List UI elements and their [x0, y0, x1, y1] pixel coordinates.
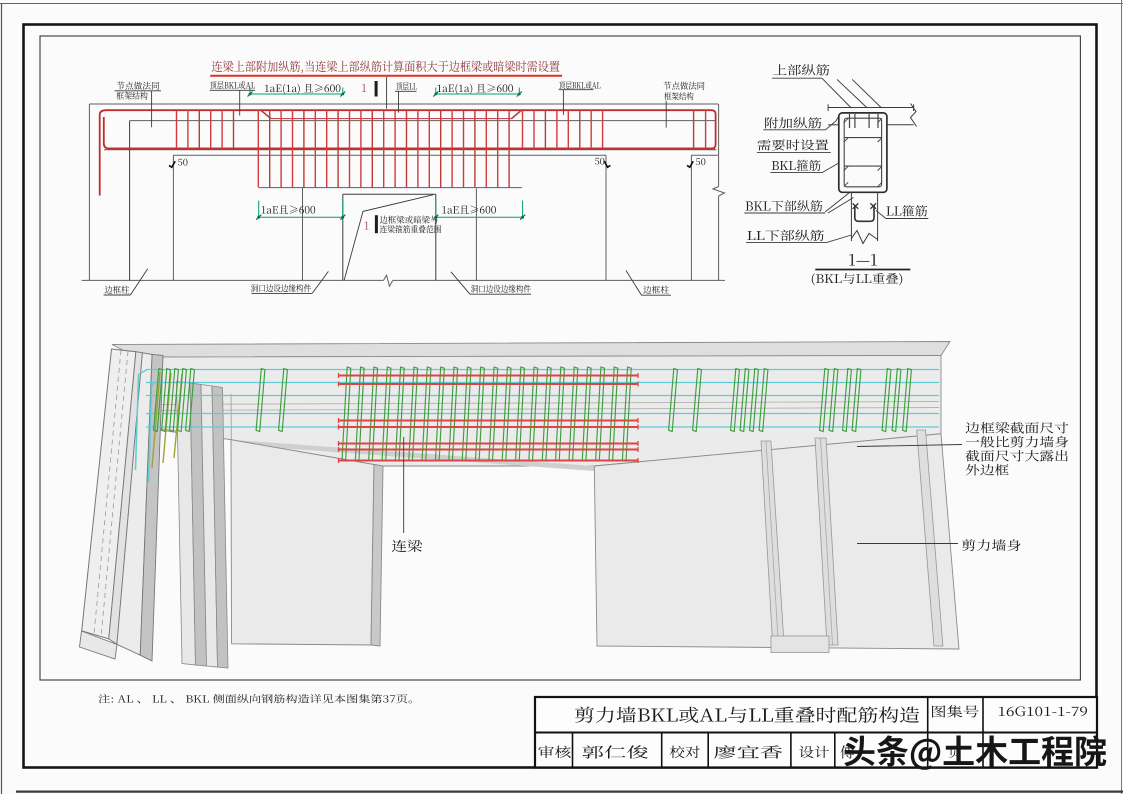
- svg-text:头条@土木工程院: 头条@土木工程院: [843, 726, 1107, 774]
- svg-text:LL箍筋: LL箍筋: [886, 202, 928, 220]
- svg-text:边框柱: 边框柱: [643, 283, 669, 296]
- svg-text:(BKL与LL重叠): (BKL与LL重叠): [811, 270, 904, 287]
- svg-text:1aE(1a) 且≥600: 1aE(1a) 且≥600: [264, 80, 341, 95]
- svg-text:注: AL 、 LL 、 BKL 侧面纵向钢筋构造详见本图集: 注: AL 、 LL 、 BKL 侧面纵向钢筋构造详见本图集第37页。: [98, 691, 420, 706]
- svg-text:廖宜香: 廖宜香: [713, 742, 783, 763]
- svg-text:1aE(1a) 且≥600: 1aE(1a) 且≥600: [437, 80, 514, 95]
- svg-text:附加纵筋: 附加纵筋: [764, 114, 822, 132]
- svg-text:1—1: 1—1: [848, 249, 878, 271]
- svg-text:LL下部纵筋: LL下部纵筋: [747, 226, 825, 244]
- svg-text:设计: 设计: [799, 741, 831, 761]
- svg-text:50: 50: [695, 154, 705, 168]
- svg-text:剪力墙身: 剪力墙身: [961, 535, 1022, 554]
- svg-text:50: 50: [594, 154, 604, 168]
- svg-text:16G101-1-79: 16G101-1-79: [998, 701, 1088, 720]
- svg-text:顶层LL: 顶层LL: [396, 79, 417, 92]
- svg-text:连梁上部附加纵筋,当连梁上部纵筋计算面积大于边框梁或暗梁时需: 连梁上部附加纵筋,当连梁上部纵筋计算面积大于边框梁或暗梁时需设置: [212, 57, 561, 75]
- svg-text:校对: 校对: [669, 741, 700, 761]
- svg-text:审核: 审核: [538, 741, 572, 761]
- svg-text:外边框: 外边框: [965, 460, 1009, 479]
- svg-text:洞口边设边缘构件: 洞口边设边缘构件: [471, 282, 531, 295]
- svg-text:洞口边设边缘构件: 洞口边设边缘构件: [251, 282, 311, 295]
- svg-text:郭仁俊: 郭仁俊: [582, 742, 650, 763]
- svg-text:1aE且≥600: 1aE且≥600: [261, 202, 316, 217]
- svg-text:BKL下部纵筋: BKL下部纵筋: [745, 197, 823, 215]
- svg-text:边框柱: 边框柱: [104, 283, 129, 296]
- svg-text:剪力墙BKL或AL与LL重叠时配筋构造: 剪力墙BKL或AL与LL重叠时配筋构造: [574, 703, 920, 728]
- svg-text:1: 1: [361, 80, 367, 96]
- svg-text:50: 50: [178, 155, 188, 169]
- svg-text:连梁箍筋重叠范围: 连梁箍筋重叠范围: [380, 222, 442, 235]
- svg-text:图集号: 图集号: [930, 701, 979, 721]
- svg-text:框架结构: 框架结构: [664, 90, 694, 103]
- svg-text:顶层BKL或AL: 顶层BKL或AL: [210, 79, 256, 92]
- svg-text:1: 1: [364, 218, 370, 234]
- svg-text:需要时设置: 需要时设置: [757, 135, 829, 153]
- svg-text:1aE且≥600: 1aE且≥600: [441, 202, 496, 217]
- svg-text:上部纵筋: 上部纵筋: [773, 61, 830, 79]
- svg-text:BKL箍筋: BKL箍筋: [771, 156, 821, 174]
- svg-text:连梁: 连梁: [392, 535, 424, 555]
